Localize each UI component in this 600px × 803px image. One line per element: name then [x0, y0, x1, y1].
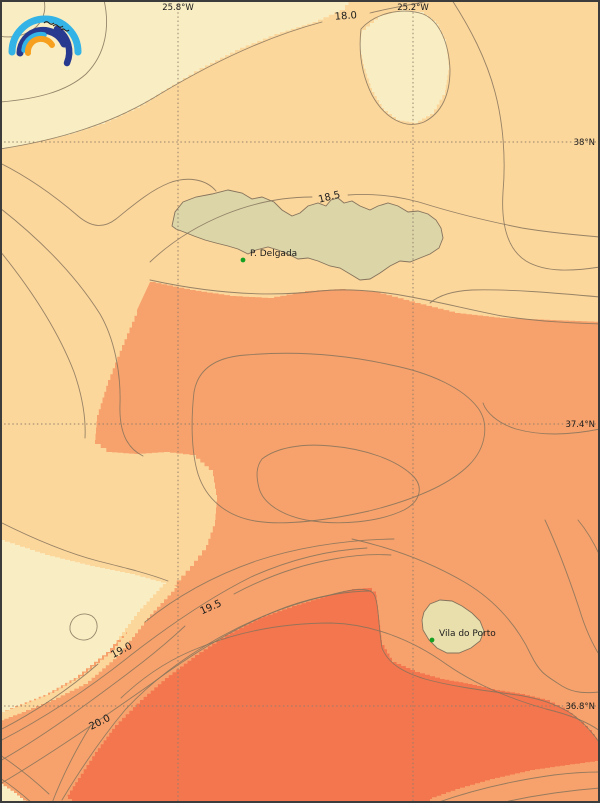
lat-label-38n: 38°N [574, 138, 595, 148]
isotherm-label-18.0: 18.0 [334, 10, 357, 23]
sst-map: 25.8°W 25.2°W 38°N 37.4°N 36.8°N 18.0 18… [0, 0, 600, 803]
map-canvas: 25.8°W 25.2°W 38°N 37.4°N 36.8°N 18.0 18… [0, 0, 600, 803]
lat-label-37.4n: 37.4°N [565, 420, 595, 430]
place-dot [241, 258, 246, 263]
lat-label-36.8n: 36.8°N [565, 702, 595, 712]
place-label: Vila do Porto [439, 629, 496, 639]
lon-label-25.8w: 25.8°W [162, 3, 194, 13]
lon-label-25.2w: 25.2°W [397, 3, 429, 13]
place-dot [430, 638, 435, 643]
place-label: P. Delgada [250, 249, 297, 259]
